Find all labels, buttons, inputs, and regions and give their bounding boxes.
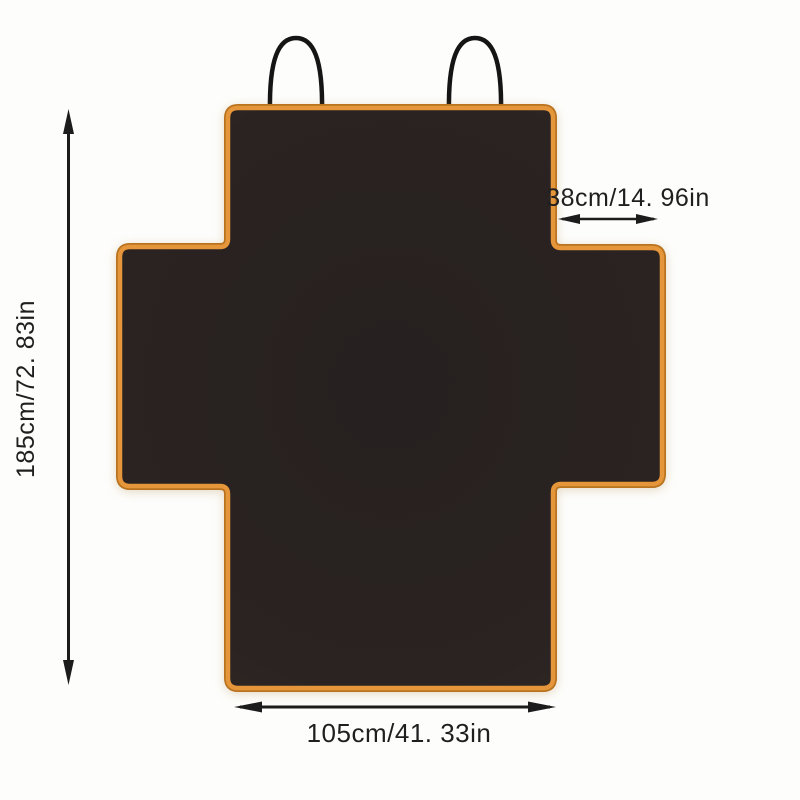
- strap-loop-left: [270, 38, 322, 112]
- top-flap-width-label: 38cm/14. 96in: [546, 184, 710, 212]
- height-dimension: 185cm/72. 83in: [12, 109, 74, 685]
- height-arrowhead-down-icon: [63, 660, 74, 685]
- height-dimension-label: 185cm/72. 83in: [12, 300, 40, 478]
- flap-arrowhead-right-icon: [636, 214, 658, 224]
- height-arrowhead-up-icon: [63, 109, 74, 134]
- strap-loop-right: [449, 38, 501, 112]
- bottom-width-dimension: 105cm/41. 33in: [234, 702, 556, 749]
- diagram-svg: 185cm/72. 83in 38cm/14. 96in 105cm/41. 3…: [0, 0, 800, 800]
- headrest-straps: [270, 38, 501, 112]
- bottom-width-label: 105cm/41. 33in: [307, 718, 492, 748]
- product-dimension-diagram: 185cm/72. 83in 38cm/14. 96in 105cm/41. 3…: [0, 0, 800, 800]
- bottom-arrowhead-left-icon: [234, 702, 262, 713]
- bottom-arrowhead-right-icon: [528, 702, 556, 713]
- flap-arrowhead-left-icon: [558, 214, 580, 224]
- top-flap-width-dimension: 38cm/14. 96in: [546, 184, 710, 224]
